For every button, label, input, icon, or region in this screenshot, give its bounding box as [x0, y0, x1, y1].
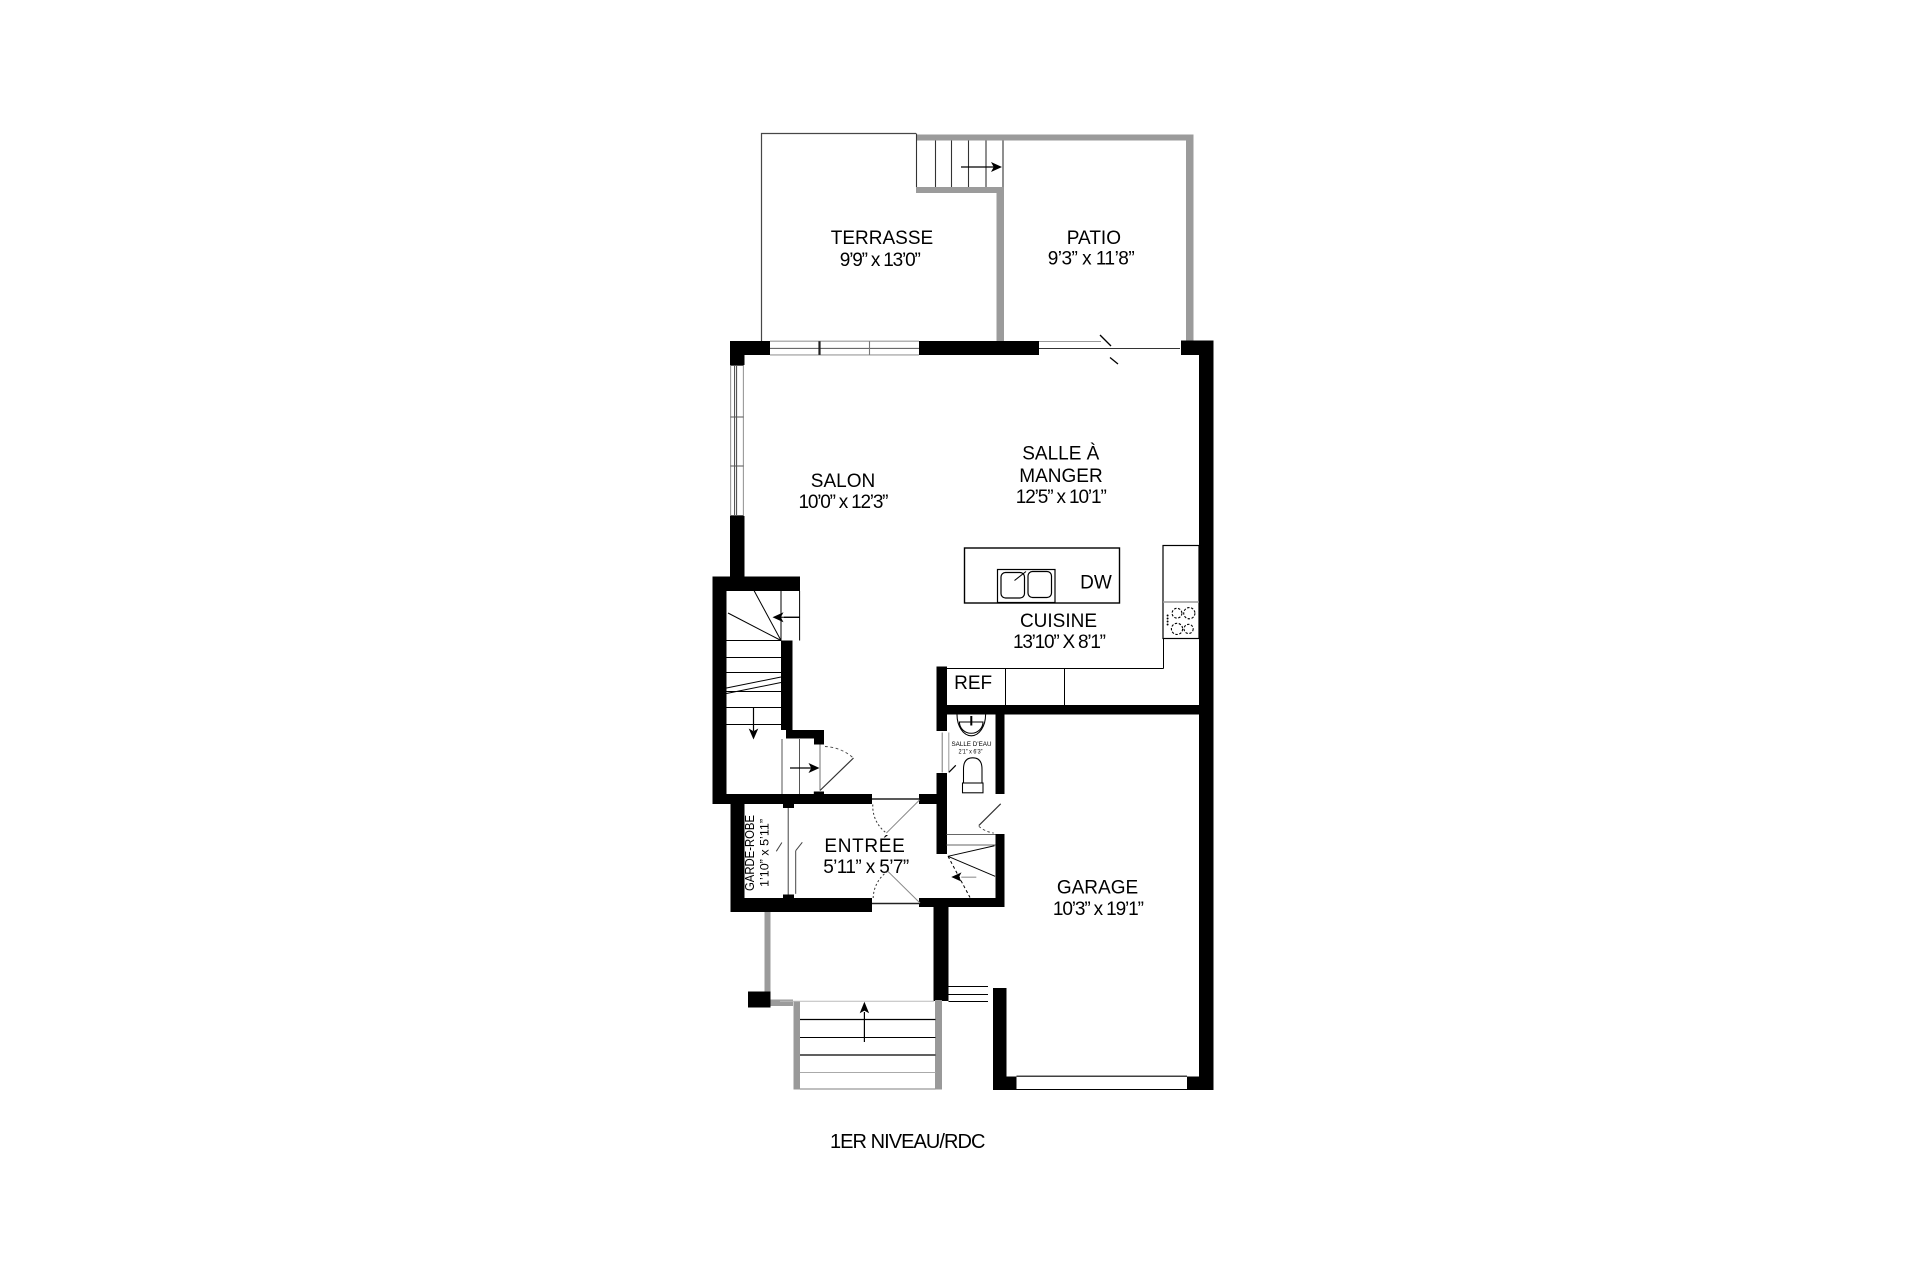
svg-text:5’11” x 5’7”: 5’11” x 5’7”	[823, 857, 909, 878]
svg-text:MANGER: MANGER	[1019, 466, 1102, 487]
svg-text:SALLE À: SALLE À	[1022, 444, 1099, 465]
svg-text:TERRASSE: TERRASSE	[831, 228, 933, 249]
svg-text:2’1” x 6’3”: 2’1” x 6’3”	[959, 749, 983, 756]
svg-text:GARAGE: GARAGE	[1057, 878, 1138, 899]
svg-text:SALLE D’EAU: SALLE D’EAU	[952, 741, 992, 748]
svg-text:DW: DW	[1080, 573, 1112, 594]
svg-text:9’3” x 11’8”: 9’3” x 11’8”	[1048, 248, 1135, 269]
svg-text:10’3” x 19’1”: 10’3” x 19’1”	[1053, 899, 1144, 920]
svg-text:13’10” X 8’1”: 13’10” X 8’1”	[1013, 632, 1106, 653]
svg-text:1ER NIVEAU/RDC: 1ER NIVEAU/RDC	[830, 1131, 985, 1153]
svg-text:10’0” x 12’3”: 10’0” x 12’3”	[799, 492, 889, 513]
svg-text:1’10” x 5’11”: 1’10” x 5’11”	[758, 819, 772, 887]
svg-text:CUISINE: CUISINE	[1020, 611, 1097, 632]
svg-text:REF: REF	[954, 673, 992, 694]
svg-text:12’5” x 10’1”: 12’5” x 10’1”	[1016, 487, 1107, 508]
svg-text:SALON: SALON	[811, 471, 875, 492]
svg-text:GARDE-ROBE: GARDE-ROBE	[743, 815, 757, 891]
svg-text:9’9” x 13’0”: 9’9” x 13’0”	[840, 250, 921, 271]
svg-text:PATIO: PATIO	[1067, 228, 1121, 249]
svg-text:ENTRÉE: ENTRÉE	[824, 836, 905, 857]
